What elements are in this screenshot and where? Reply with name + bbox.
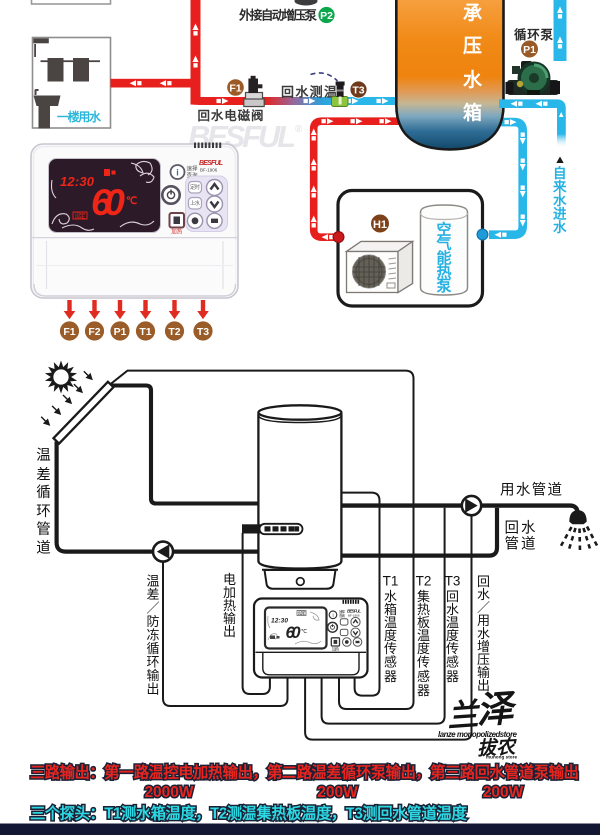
svg-text:T2: T2	[416, 574, 432, 589]
svg-text:压: 压	[463, 35, 482, 57]
svg-text:BF-1906: BF-1906	[348, 614, 360, 618]
svg-text:P1: P1	[523, 44, 536, 56]
svg-text:加热: 加热	[332, 647, 339, 652]
svg-text:F1: F1	[63, 326, 75, 338]
svg-text:T1: T1	[383, 574, 399, 589]
svg-text:200W: 200W	[483, 784, 524, 801]
svg-text:T3: T3	[445, 574, 461, 589]
svg-text:T3: T3	[197, 326, 209, 338]
svg-text:三个探头：T1测水箱温度，T2测温集热板温度，T3测回水管道: 三个探头：T1测水箱温度，T2测温集热板温度，T3测回水管道温度	[30, 804, 467, 823]
svg-text:循: 循	[36, 484, 51, 501]
svg-text:H1: H1	[373, 219, 387, 231]
svg-text:管: 管	[36, 521, 51, 538]
svg-text:i: i	[176, 168, 179, 178]
svg-text:感: 感	[384, 655, 397, 670]
svg-text:差: 差	[36, 467, 51, 484]
svg-text:温: 温	[36, 447, 51, 464]
svg-text:℃: ℃	[301, 629, 308, 635]
svg-text:上水: 上水	[190, 199, 200, 207]
svg-text:i: i	[332, 613, 333, 619]
svg-text:环: 环	[36, 504, 51, 520]
svg-text:60: 60	[286, 624, 302, 642]
svg-text:回水: 回水	[505, 520, 537, 537]
svg-text:T2: T2	[168, 326, 180, 338]
svg-text:一楼用水: 一楼用水	[57, 109, 102, 124]
svg-text:三路输出：第一路温控电加热输出，第二路温差循环泵输出，第三路: 三路输出：第一路温控电加热输出，第二路温差循环泵输出，第三路回水管道泵输出	[30, 763, 579, 782]
svg-text:F2: F2	[88, 326, 100, 338]
svg-text:循环泵: 循环泵	[514, 27, 553, 42]
svg-text:200W: 200W	[317, 784, 358, 801]
svg-text:BF-1906: BF-1906	[200, 168, 218, 173]
svg-text:设定: 设定	[75, 212, 86, 220]
svg-text:60: 60	[91, 182, 125, 223]
svg-text:道: 道	[36, 540, 51, 557]
svg-text:查询: 查询	[339, 613, 345, 618]
svg-text:munong store: munong store	[486, 755, 517, 760]
svg-text:2000W: 2000W	[144, 784, 193, 801]
svg-text:设定: 设定	[298, 610, 307, 617]
svg-text:T3: T3	[352, 85, 364, 97]
svg-text:F1: F1	[229, 83, 241, 95]
svg-text:泽: 泽	[475, 688, 519, 732]
svg-text:器: 器	[446, 669, 459, 684]
svg-text:出: 出	[223, 624, 236, 639]
svg-text:速择: 速择	[187, 165, 198, 173]
svg-text:定时: 定时	[190, 183, 200, 191]
svg-text:传: 传	[417, 655, 430, 670]
svg-text:℃: ℃	[126, 196, 137, 207]
svg-text:水: 水	[553, 219, 567, 235]
svg-text:外接自动增压泵: 外接自动增压泵	[238, 8, 317, 23]
svg-text:回水测温: 回水测温	[281, 85, 337, 100]
svg-text:出: 出	[146, 682, 159, 697]
svg-text:T1: T1	[139, 326, 151, 338]
svg-text:感: 感	[446, 655, 459, 670]
svg-text:®: ®	[295, 124, 303, 135]
svg-text:器: 器	[384, 669, 397, 684]
svg-text:12:30: 12:30	[60, 174, 95, 189]
svg-text:箱: 箱	[463, 101, 482, 124]
svg-text:BESFUL: BESFUL	[199, 160, 223, 167]
svg-text:P1: P1	[114, 326, 127, 338]
svg-text:加热: 加热	[171, 228, 182, 236]
svg-text:回水电磁阀: 回水电磁阀	[198, 108, 264, 123]
svg-text:感: 感	[417, 669, 430, 684]
svg-text:泵: 泵	[436, 278, 451, 295]
svg-text:承: 承	[463, 2, 482, 24]
svg-text:用水管道: 用水管道	[500, 482, 562, 499]
svg-text:P2: P2	[320, 10, 333, 22]
svg-text:水: 水	[463, 69, 483, 91]
svg-text:器: 器	[417, 683, 430, 698]
